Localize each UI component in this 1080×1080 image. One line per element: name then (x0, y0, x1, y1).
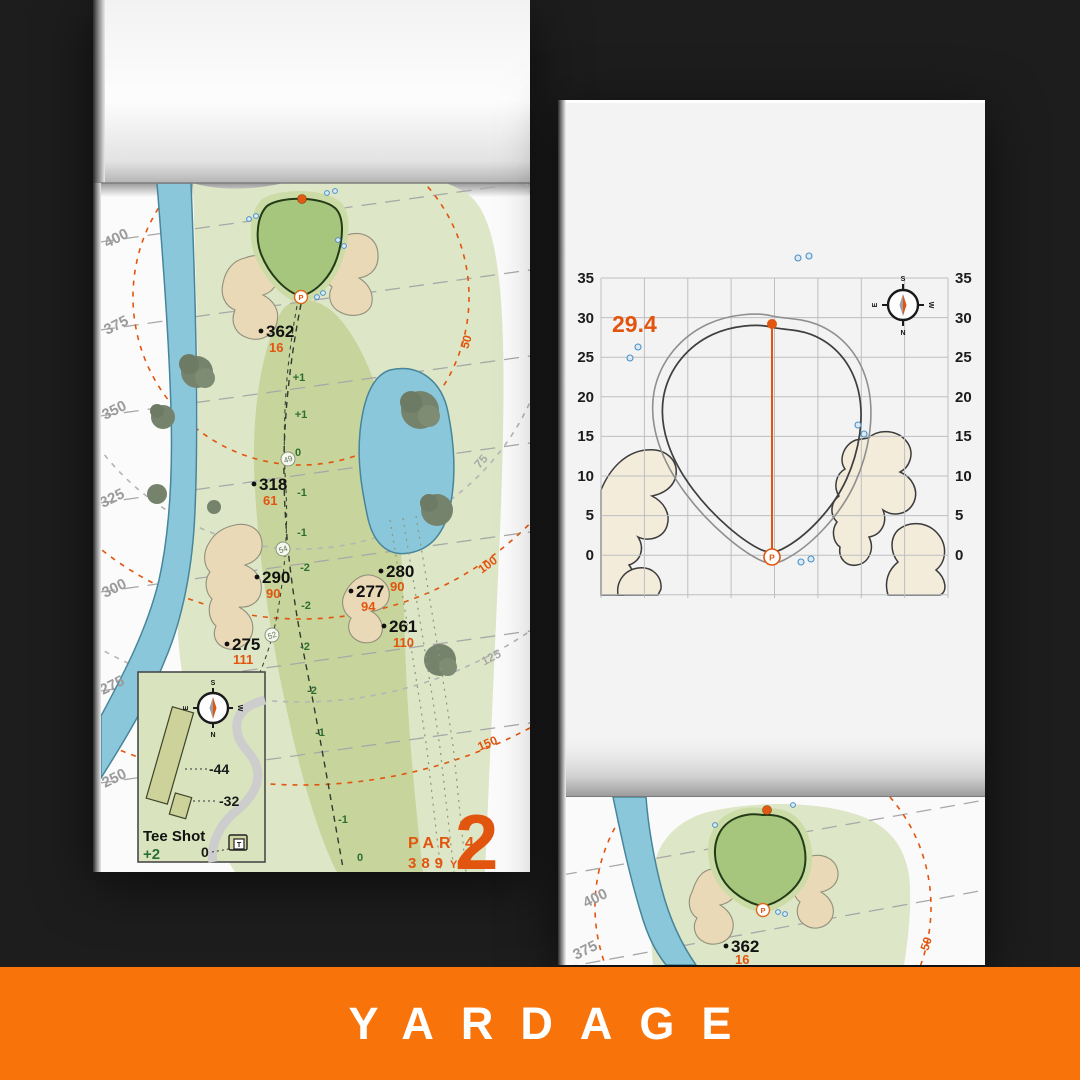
aim-dot (298, 195, 307, 204)
pin-marker: P (295, 291, 308, 304)
flipped-page (93, 0, 530, 183)
compass-e: E (183, 705, 190, 710)
axis-label: 5 (955, 507, 963, 524)
axis-label: 20 (955, 389, 972, 406)
elev: +1 (293, 372, 306, 384)
right-page-curl-edge (558, 100, 566, 965)
elev: -2 (300, 641, 310, 653)
yardage-banner: YARDAGE (0, 967, 1080, 1080)
yardage-book-scene: 49 54 52 P 400 375 350 325 (0, 0, 1080, 1080)
hole-yardage: 389 (408, 855, 448, 872)
axis-label: 15 (577, 428, 594, 445)
pin-letter: P (298, 293, 303, 302)
yardage-banner-label: YARDAGE (322, 998, 759, 1050)
marker-dist: 261 (389, 617, 417, 636)
axis-label: 10 (577, 468, 594, 485)
tee-offset-32: -32 (219, 793, 239, 809)
marker-carry: 61 (263, 493, 277, 508)
inset-title: Tee Shot (143, 828, 205, 845)
pin-letter: P (760, 906, 765, 915)
axis-label: 5 (586, 507, 594, 524)
tee-icon-letter: T (237, 842, 242, 849)
marker-dist: 362 (266, 322, 294, 341)
axis-label: 35 (577, 270, 594, 287)
marker-carry: 94 (361, 599, 376, 614)
axis-label: 15 (955, 428, 972, 445)
front-to-pin-distance: 29.4 (612, 311, 657, 337)
axis-label: 25 (577, 349, 594, 366)
axis-label: 25 (955, 349, 972, 366)
elev: 0 (357, 852, 363, 864)
elev: -1 (297, 487, 307, 499)
inset-score: +2 (143, 846, 160, 863)
compass-s: S (211, 680, 216, 687)
tee-shot-inset: -44 -32 0 Tee Shot +2 T S (138, 672, 265, 863)
marker-carry: 16 (735, 952, 749, 965)
np-pin-marker: P (757, 904, 770, 917)
compass-n: N (210, 732, 215, 739)
axis-label: 35 (955, 270, 972, 287)
elev: +1 (295, 409, 308, 421)
green-page-paper (562, 100, 985, 797)
compass-n: N (900, 330, 905, 337)
elev: -2 (301, 600, 311, 612)
compass-w: W (236, 705, 243, 712)
axis-label: 20 (577, 389, 594, 406)
elev: -1 (297, 527, 307, 539)
page-top-highlight (562, 100, 985, 103)
compass-w: W (927, 302, 934, 309)
axis-label: 10 (955, 468, 972, 485)
axis-label: 0 (586, 547, 594, 564)
page-fold (562, 730, 985, 797)
elev: 0 (295, 447, 301, 459)
elev: -2 (300, 562, 310, 574)
axis-label: 0 (955, 547, 963, 564)
axis-label: 30 (577, 310, 594, 327)
marker-carry: 110 (393, 635, 414, 650)
elev: -1 (338, 814, 348, 826)
left-page-curl-edge (93, 183, 101, 872)
axis-label: 30 (955, 310, 972, 327)
hole-number: 2 (455, 798, 498, 875)
marker-carry: 16 (269, 340, 283, 355)
np-aim-dot (763, 806, 772, 815)
pin-letter: P (769, 553, 775, 563)
green-detail-page: 35 30 25 20 15 10 5 0 35 30 25 20 15 10 … (558, 100, 985, 965)
compass-e: E (872, 302, 879, 307)
compass-s: S (901, 276, 906, 283)
marker-carry: 90 (266, 586, 280, 601)
marker-carry: 111 (233, 652, 253, 667)
elev: -1 (315, 727, 325, 739)
elev: -2 (307, 685, 317, 697)
front-edge-dot (767, 319, 777, 329)
marker-dist: 290 (262, 568, 290, 587)
tee-offset-44: -44 (209, 761, 229, 777)
marker-dist: 318 (259, 475, 287, 494)
hole-map-page: 49 54 52 P 400 375 350 325 (85, 0, 530, 875)
tee-origin: 0 (201, 844, 209, 860)
tee-icon: T (229, 835, 247, 850)
marker-carry: 90 (390, 579, 404, 594)
